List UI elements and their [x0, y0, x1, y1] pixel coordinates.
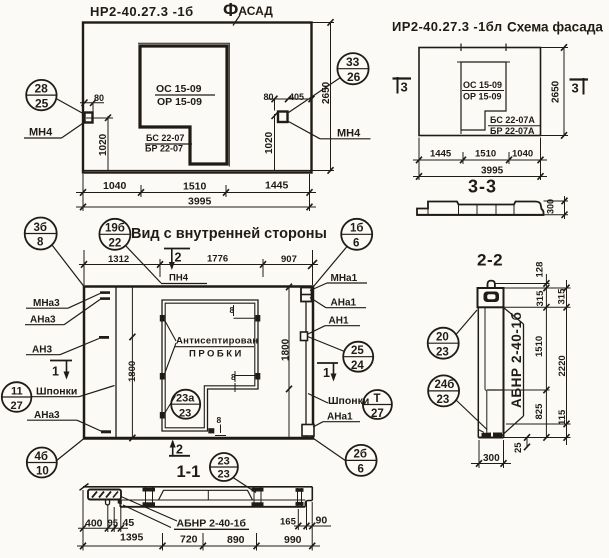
svg-text:БР 22-07А: БР 22-07А	[490, 126, 535, 136]
svg-text:19б: 19б	[105, 223, 125, 235]
svg-text:20: 20	[436, 332, 449, 344]
svg-text:Вид с внутренней стороны: Вид с внутренней стороны	[131, 226, 327, 242]
svg-text:90: 90	[316, 515, 328, 527]
svg-text:23: 23	[218, 469, 230, 481]
svg-text:300: 300	[483, 453, 500, 464]
svg-text:6: 6	[358, 464, 364, 476]
svg-text:8: 8	[217, 415, 222, 425]
svg-text:1510: 1510	[534, 336, 545, 357]
svg-text:23: 23	[437, 394, 450, 406]
svg-text:23а: 23а	[176, 393, 195, 405]
svg-text:165: 165	[280, 517, 297, 528]
svg-text:1: 1	[52, 365, 59, 379]
svg-text:1040: 1040	[512, 149, 533, 160]
svg-text:6: 6	[353, 238, 359, 250]
svg-text:Т: Т	[374, 393, 381, 405]
svg-text:80: 80	[94, 93, 104, 103]
svg-text:890: 890	[227, 534, 245, 546]
svg-text:2-2: 2-2	[477, 251, 503, 270]
svg-text:1312: 1312	[108, 254, 129, 265]
svg-text:1б: 1б	[350, 223, 364, 235]
svg-text:БС 22-07А: БС 22-07А	[490, 115, 535, 125]
svg-text:1510: 1510	[183, 181, 207, 193]
svg-text:1445: 1445	[265, 180, 289, 192]
svg-text:4б: 4б	[35, 451, 49, 463]
svg-text:1-1: 1-1	[177, 463, 201, 481]
svg-text:825: 825	[534, 403, 545, 420]
svg-text:ПРОБКИ: ПРОБКИ	[189, 349, 244, 360]
svg-text:10: 10	[36, 466, 49, 478]
svg-text:АНа3: АНа3	[30, 315, 56, 326]
svg-text:24б: 24б	[435, 379, 455, 391]
svg-text:405: 405	[289, 92, 304, 102]
svg-text:2б: 2б	[354, 449, 368, 461]
svg-text:45: 45	[123, 517, 135, 529]
svg-text:907: 907	[281, 254, 297, 265]
svg-text:23: 23	[218, 456, 230, 468]
svg-text:300: 300	[546, 199, 556, 214]
svg-text:95: 95	[108, 518, 119, 529]
svg-text:33: 33	[346, 55, 360, 69]
svg-text:23: 23	[436, 347, 449, 359]
svg-text:БС 22-07: БС 22-07	[146, 133, 184, 143]
svg-text:АНа1: АНа1	[327, 412, 353, 423]
svg-text:АБНР 2-40-1б: АБНР 2-40-1б	[177, 518, 247, 530]
svg-text:128: 128	[535, 262, 546, 278]
svg-text:МН4: МН4	[29, 127, 53, 139]
svg-text:БР 22-07: БР 22-07	[145, 144, 183, 154]
svg-text:ОС 15-09: ОС 15-09	[156, 83, 202, 95]
svg-text:1776: 1776	[207, 254, 228, 265]
svg-text:МН4: МН4	[337, 128, 361, 140]
svg-text:315: 315	[557, 288, 568, 305]
svg-text:2: 2	[176, 443, 183, 457]
svg-text:3б: 3б	[34, 222, 48, 234]
svg-text:23: 23	[179, 408, 191, 420]
svg-text:3995: 3995	[481, 166, 504, 177]
svg-text:2220: 2220	[557, 355, 568, 376]
svg-text:26: 26	[347, 70, 361, 84]
svg-text:МНа1: МНа1	[331, 273, 358, 284]
svg-text:ОС 15-09: ОС 15-09	[463, 80, 502, 90]
svg-text:315: 315	[535, 290, 546, 307]
svg-text:990: 990	[284, 534, 302, 546]
svg-text:1020: 1020	[264, 131, 275, 154]
svg-text:ФАСАД: ФАСАД	[223, 0, 273, 20]
svg-text:3-3: 3-3	[468, 177, 497, 197]
svg-text:АНа3: АНа3	[34, 410, 60, 421]
svg-text:АНа1: АНа1	[331, 298, 357, 309]
svg-text:МНа3: МНа3	[33, 298, 60, 309]
svg-text:АН1: АН1	[329, 316, 349, 327]
svg-text:3: 3	[401, 80, 408, 95]
svg-text:25: 25	[351, 345, 364, 357]
svg-text:1800: 1800	[281, 338, 292, 361]
svg-text:1395: 1395	[120, 532, 144, 544]
svg-text:115: 115	[557, 409, 568, 425]
svg-text:ИР2-40.27.3 -1бл: ИР2-40.27.3 -1бл	[392, 19, 502, 34]
svg-text:НР2-40.27.3 -1б: НР2-40.27.3 -1б	[90, 4, 194, 19]
svg-text:720: 720	[180, 534, 198, 546]
svg-text:ОР 15-09: ОР 15-09	[463, 92, 502, 102]
svg-text:1020: 1020	[98, 133, 109, 156]
svg-text:1445: 1445	[430, 149, 452, 160]
svg-text:27: 27	[371, 408, 384, 420]
svg-text:1040: 1040	[103, 180, 127, 192]
svg-text:1510: 1510	[475, 149, 496, 160]
svg-text:400: 400	[85, 518, 103, 530]
svg-text:3: 3	[572, 81, 579, 96]
svg-text:Антисептирован: Антисептирован	[176, 336, 258, 347]
svg-text:8: 8	[37, 237, 44, 249]
svg-text:2650: 2650	[551, 80, 562, 103]
svg-text:24: 24	[351, 360, 364, 372]
svg-text:3995: 3995	[188, 196, 212, 208]
svg-text:25: 25	[35, 97, 49, 111]
svg-text:25: 25	[513, 442, 524, 453]
svg-text:ПН4: ПН4	[169, 273, 189, 284]
svg-text:2: 2	[175, 251, 182, 265]
svg-text:АН3: АН3	[32, 345, 52, 356]
svg-text:1800: 1800	[127, 361, 138, 382]
svg-text:Схема фасада: Схема фасада	[507, 20, 603, 35]
svg-text:1: 1	[323, 366, 330, 380]
svg-text:Шпонки: Шпонки	[36, 386, 77, 398]
svg-text:АБНР 2-40-1б: АБНР 2-40-1б	[509, 311, 524, 408]
svg-text:22: 22	[109, 238, 122, 250]
svg-text:27: 27	[11, 400, 23, 412]
svg-text:28: 28	[35, 82, 49, 96]
svg-text:ОР 15-09: ОР 15-09	[157, 96, 202, 108]
svg-text:11: 11	[11, 386, 23, 398]
